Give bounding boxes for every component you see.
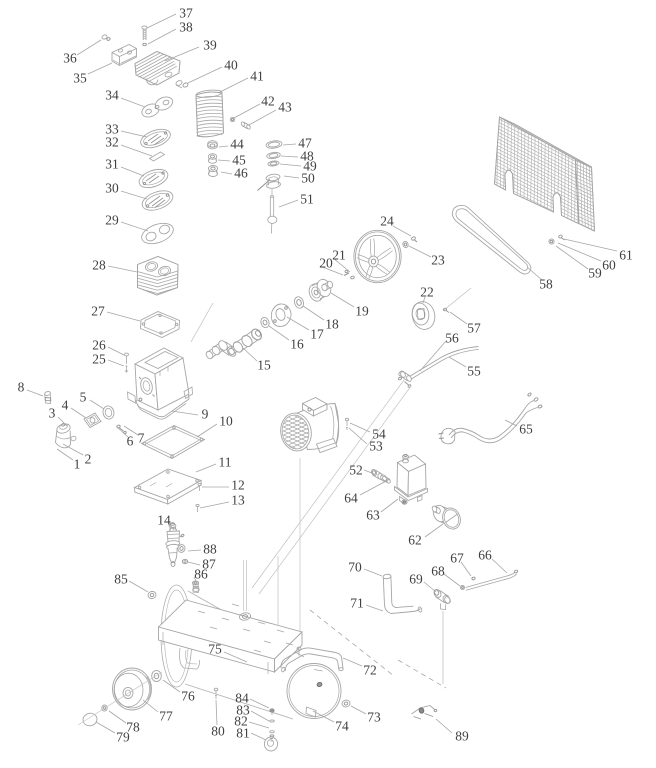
svg-text:75: 75 bbox=[208, 642, 222, 657]
svg-text:25: 25 bbox=[92, 352, 106, 367]
svg-text:39: 39 bbox=[203, 38, 217, 53]
svg-text:63: 63 bbox=[366, 508, 380, 523]
svg-text:43: 43 bbox=[278, 100, 292, 115]
svg-text:79: 79 bbox=[116, 730, 130, 745]
svg-text:18: 18 bbox=[325, 317, 339, 332]
svg-text:59: 59 bbox=[588, 266, 602, 281]
svg-text:64: 64 bbox=[344, 491, 358, 506]
svg-text:36: 36 bbox=[63, 51, 77, 66]
svg-text:22: 22 bbox=[420, 285, 434, 300]
svg-text:53: 53 bbox=[369, 439, 383, 454]
svg-text:1: 1 bbox=[74, 457, 81, 472]
svg-text:10: 10 bbox=[219, 414, 233, 429]
svg-text:23: 23 bbox=[431, 253, 445, 268]
svg-text:72: 72 bbox=[363, 663, 377, 678]
svg-text:19: 19 bbox=[355, 304, 369, 319]
svg-text:81: 81 bbox=[236, 726, 250, 741]
svg-text:76: 76 bbox=[181, 689, 195, 704]
svg-text:56: 56 bbox=[445, 331, 459, 346]
svg-text:11: 11 bbox=[219, 455, 232, 470]
svg-text:5: 5 bbox=[80, 390, 87, 405]
svg-text:71: 71 bbox=[350, 596, 364, 611]
svg-text:2: 2 bbox=[85, 452, 92, 467]
svg-text:57: 57 bbox=[467, 321, 481, 336]
svg-text:77: 77 bbox=[159, 709, 173, 724]
svg-text:42: 42 bbox=[261, 94, 275, 109]
svg-text:89: 89 bbox=[455, 729, 469, 744]
svg-text:88: 88 bbox=[203, 542, 217, 557]
svg-text:37: 37 bbox=[179, 6, 193, 21]
svg-text:70: 70 bbox=[348, 560, 362, 575]
svg-text:58: 58 bbox=[539, 277, 553, 292]
svg-text:52: 52 bbox=[349, 463, 363, 478]
svg-text:61: 61 bbox=[619, 248, 633, 263]
svg-text:32: 32 bbox=[105, 135, 119, 150]
svg-text:65: 65 bbox=[519, 422, 533, 437]
svg-text:46: 46 bbox=[234, 166, 248, 181]
svg-text:27: 27 bbox=[91, 304, 105, 319]
svg-text:28: 28 bbox=[92, 258, 106, 273]
svg-text:74: 74 bbox=[335, 719, 349, 734]
svg-text:9: 9 bbox=[202, 407, 209, 422]
svg-text:24: 24 bbox=[380, 214, 394, 229]
svg-text:17: 17 bbox=[310, 327, 324, 342]
svg-text:15: 15 bbox=[257, 358, 271, 373]
svg-text:35: 35 bbox=[73, 71, 87, 86]
svg-text:31: 31 bbox=[105, 157, 119, 172]
svg-text:16: 16 bbox=[290, 337, 304, 352]
svg-text:40: 40 bbox=[224, 58, 238, 73]
svg-text:44: 44 bbox=[230, 137, 244, 152]
svg-text:51: 51 bbox=[300, 192, 314, 207]
svg-text:80: 80 bbox=[211, 724, 225, 739]
svg-text:14: 14 bbox=[157, 513, 171, 528]
svg-text:6: 6 bbox=[127, 434, 134, 449]
svg-text:86: 86 bbox=[194, 567, 208, 582]
svg-text:12: 12 bbox=[231, 478, 245, 493]
svg-text:66: 66 bbox=[478, 548, 492, 563]
svg-text:73: 73 bbox=[367, 710, 381, 725]
svg-text:4: 4 bbox=[62, 398, 69, 413]
svg-text:50: 50 bbox=[301, 171, 315, 186]
svg-text:29: 29 bbox=[105, 213, 119, 228]
svg-text:85: 85 bbox=[114, 572, 128, 587]
svg-text:38: 38 bbox=[179, 20, 193, 35]
svg-text:41: 41 bbox=[250, 69, 264, 84]
svg-text:60: 60 bbox=[602, 258, 616, 273]
svg-text:8: 8 bbox=[18, 380, 25, 395]
svg-text:30: 30 bbox=[105, 181, 119, 196]
svg-text:62: 62 bbox=[408, 533, 422, 548]
svg-text:13: 13 bbox=[231, 493, 245, 508]
svg-text:3: 3 bbox=[49, 406, 56, 421]
svg-text:21: 21 bbox=[332, 248, 346, 263]
svg-text:34: 34 bbox=[105, 88, 119, 103]
svg-text:20: 20 bbox=[319, 256, 333, 271]
svg-text:7: 7 bbox=[138, 431, 145, 446]
svg-text:67: 67 bbox=[450, 551, 464, 566]
svg-text:68: 68 bbox=[431, 564, 445, 579]
svg-text:26: 26 bbox=[92, 338, 106, 353]
svg-text:55: 55 bbox=[467, 364, 481, 379]
svg-text:69: 69 bbox=[409, 572, 423, 587]
